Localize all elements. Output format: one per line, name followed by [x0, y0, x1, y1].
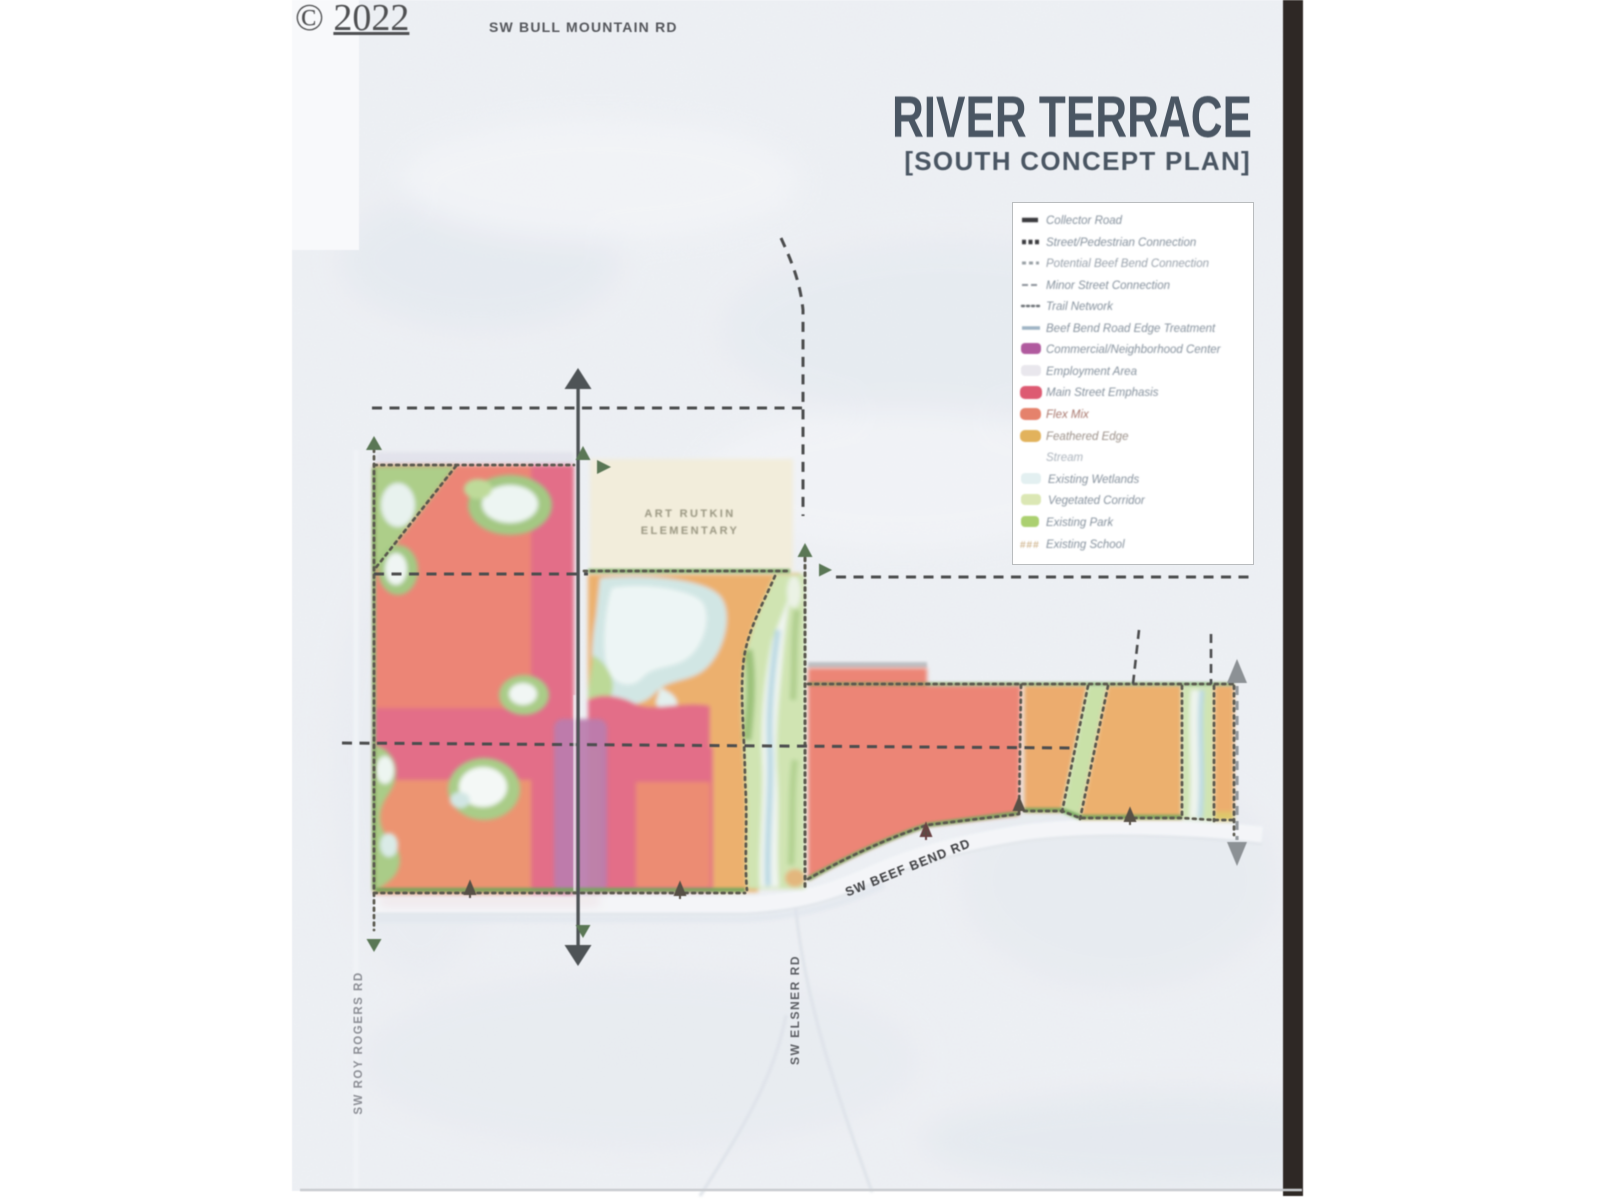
- svg-text:Potential Beef Bend Connection: Potential Beef Bend Connection: [1046, 258, 1209, 270]
- svg-text:Existing Wetlands: Existing Wetlands: [1048, 474, 1139, 486]
- svg-text:Collector Road: Collector Road: [1046, 215, 1123, 227]
- svg-text:Employment Area: Employment Area: [1046, 366, 1137, 378]
- svg-text:Minor Street Connection: Minor Street Connection: [1046, 280, 1170, 292]
- svg-text:###: ###: [1020, 540, 1040, 551]
- svg-text:Existing Park: Existing Park: [1046, 517, 1114, 529]
- svg-text:Beef Bend Road Edge Treatment: Beef Bend Road Edge Treatment: [1046, 323, 1216, 335]
- svg-text:Vegetated Corridor: Vegetated Corridor: [1048, 495, 1146, 507]
- svg-text:Main Street Emphasis: Main Street Emphasis: [1046, 387, 1159, 399]
- svg-text:Stream: Stream: [1046, 452, 1083, 464]
- svg-text:Existing School: Existing School: [1046, 539, 1125, 551]
- svg-text:Commercial/Neighborhood Center: Commercial/Neighborhood Center: [1046, 344, 1222, 356]
- svg-text:Feathered Edge: Feathered Edge: [1046, 431, 1128, 443]
- svg-text:Street/Pedestrian Connection: Street/Pedestrian Connection: [1046, 237, 1196, 249]
- svg-text:Trail Network: Trail Network: [1046, 301, 1114, 313]
- svg-text:Flex Mix: Flex Mix: [1046, 409, 1090, 421]
